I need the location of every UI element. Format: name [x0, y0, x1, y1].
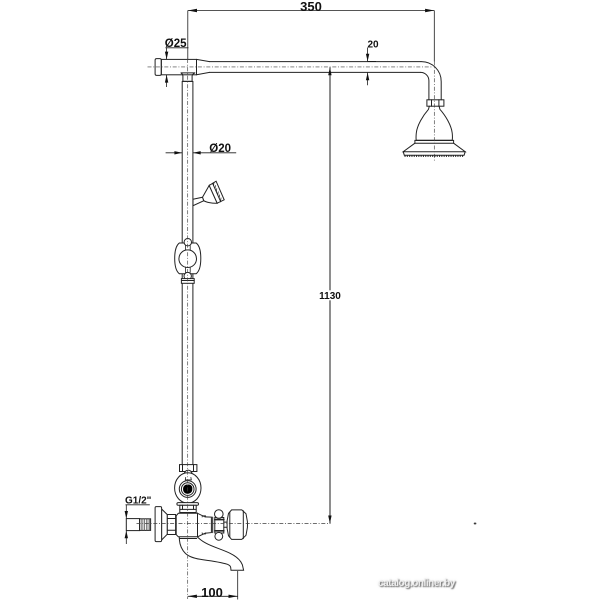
- svg-text:Ø20: Ø20: [209, 143, 231, 155]
- svg-text:350: 350: [300, 0, 322, 14]
- svg-text:20: 20: [367, 40, 379, 51]
- svg-text:1130: 1130: [319, 291, 341, 302]
- svg-text:Ø25: Ø25: [165, 38, 187, 50]
- svg-text:G1/2": G1/2": [125, 496, 152, 507]
- svg-text:100: 100: [201, 585, 223, 600]
